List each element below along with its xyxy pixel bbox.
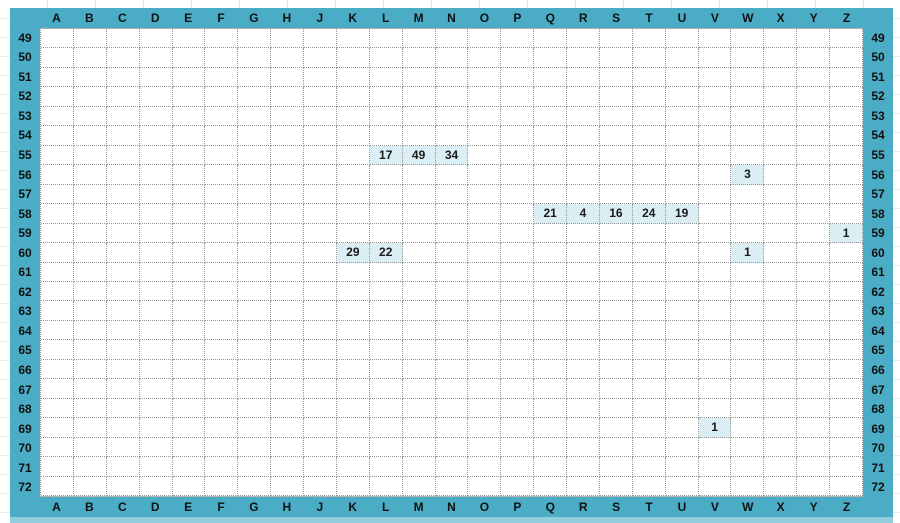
cell-A66[interactable] (41, 360, 74, 379)
cell-Y61[interactable] (797, 263, 830, 282)
cell-J55[interactable] (304, 146, 337, 165)
cell-J53[interactable] (304, 107, 337, 126)
cell-J64[interactable] (304, 321, 337, 340)
cell-S66[interactable] (600, 360, 633, 379)
cell-F60[interactable] (205, 243, 238, 262)
cell-H57[interactable] (271, 185, 304, 204)
cell-P54[interactable] (501, 126, 534, 145)
cell-J69[interactable] (304, 418, 337, 437)
cell-D57[interactable] (140, 185, 173, 204)
cell-F49[interactable] (205, 29, 238, 48)
cell-M50[interactable] (403, 48, 436, 67)
cell-X66[interactable] (764, 360, 797, 379)
cell-O69[interactable] (468, 418, 501, 437)
cell-R65[interactable] (567, 340, 600, 359)
cell-U57[interactable] (666, 185, 699, 204)
cell-B59[interactable] (74, 224, 107, 243)
cell-V55[interactable] (699, 146, 732, 165)
cell-E53[interactable] (173, 107, 206, 126)
cell-E61[interactable] (173, 263, 206, 282)
cell-G50[interactable] (238, 48, 271, 67)
cell-R53[interactable] (567, 107, 600, 126)
cell-Y66[interactable] (797, 360, 830, 379)
cell-L60[interactable]: 22 (370, 243, 403, 262)
cell-D54[interactable] (140, 126, 173, 145)
cell-X70[interactable] (764, 438, 797, 457)
cell-S55[interactable] (600, 146, 633, 165)
cell-V49[interactable] (699, 29, 732, 48)
cell-A56[interactable] (41, 165, 74, 184)
cell-Y64[interactable] (797, 321, 830, 340)
cell-U61[interactable] (666, 263, 699, 282)
cell-D52[interactable] (140, 87, 173, 106)
cell-E72[interactable] (173, 477, 206, 496)
cell-T55[interactable] (633, 146, 666, 165)
cell-S56[interactable] (600, 165, 633, 184)
cell-P69[interactable] (501, 418, 534, 437)
cell-S62[interactable] (600, 282, 633, 301)
cell-X54[interactable] (764, 126, 797, 145)
cell-N53[interactable] (436, 107, 469, 126)
cell-S71[interactable] (600, 457, 633, 476)
cell-Z51[interactable] (830, 68, 863, 87)
cell-M51[interactable] (403, 68, 436, 87)
cell-A68[interactable] (41, 399, 74, 418)
cell-N67[interactable] (436, 379, 469, 398)
cell-Y54[interactable] (797, 126, 830, 145)
cell-K53[interactable] (337, 107, 370, 126)
cell-A71[interactable] (41, 457, 74, 476)
cell-H66[interactable] (271, 360, 304, 379)
cell-X58[interactable] (764, 204, 797, 223)
cell-G54[interactable] (238, 126, 271, 145)
cell-Q51[interactable] (534, 68, 567, 87)
cell-K57[interactable] (337, 185, 370, 204)
cell-W61[interactable] (731, 263, 764, 282)
cell-C71[interactable] (107, 457, 140, 476)
cell-P63[interactable] (501, 301, 534, 320)
cell-Y59[interactable] (797, 224, 830, 243)
cell-B67[interactable] (74, 379, 107, 398)
cell-B50[interactable] (74, 48, 107, 67)
cell-U56[interactable] (666, 165, 699, 184)
cell-W62[interactable] (731, 282, 764, 301)
cell-R71[interactable] (567, 457, 600, 476)
cell-F50[interactable] (205, 48, 238, 67)
cell-U66[interactable] (666, 360, 699, 379)
cell-D62[interactable] (140, 282, 173, 301)
cell-J57[interactable] (304, 185, 337, 204)
cell-N51[interactable] (436, 68, 469, 87)
cell-N60[interactable] (436, 243, 469, 262)
cell-F68[interactable] (205, 399, 238, 418)
cell-M52[interactable] (403, 87, 436, 106)
cell-N57[interactable] (436, 185, 469, 204)
cell-T72[interactable] (633, 477, 666, 496)
cell-N68[interactable] (436, 399, 469, 418)
cell-O58[interactable] (468, 204, 501, 223)
cell-P66[interactable] (501, 360, 534, 379)
cell-W71[interactable] (731, 457, 764, 476)
cell-L58[interactable] (370, 204, 403, 223)
cell-U60[interactable] (666, 243, 699, 262)
cell-O56[interactable] (468, 165, 501, 184)
cell-L53[interactable] (370, 107, 403, 126)
cell-O50[interactable] (468, 48, 501, 67)
cell-B65[interactable] (74, 340, 107, 359)
cell-H56[interactable] (271, 165, 304, 184)
cell-C69[interactable] (107, 418, 140, 437)
cell-P59[interactable] (501, 224, 534, 243)
cell-K70[interactable] (337, 438, 370, 457)
cell-E54[interactable] (173, 126, 206, 145)
cell-K63[interactable] (337, 301, 370, 320)
cell-C65[interactable] (107, 340, 140, 359)
cell-K59[interactable] (337, 224, 370, 243)
cell-Q69[interactable] (534, 418, 567, 437)
cell-K51[interactable] (337, 68, 370, 87)
cell-C61[interactable] (107, 263, 140, 282)
cell-S49[interactable] (600, 29, 633, 48)
cell-G55[interactable] (238, 146, 271, 165)
cell-A67[interactable] (41, 379, 74, 398)
cell-S60[interactable] (600, 243, 633, 262)
cell-F52[interactable] (205, 87, 238, 106)
cell-Y71[interactable] (797, 457, 830, 476)
cell-A52[interactable] (41, 87, 74, 106)
cell-P50[interactable] (501, 48, 534, 67)
cell-M63[interactable] (403, 301, 436, 320)
cell-X61[interactable] (764, 263, 797, 282)
cell-T63[interactable] (633, 301, 666, 320)
cell-C52[interactable] (107, 87, 140, 106)
cell-E49[interactable] (173, 29, 206, 48)
cell-A51[interactable] (41, 68, 74, 87)
cell-W70[interactable] (731, 438, 764, 457)
cell-V59[interactable] (699, 224, 732, 243)
cell-S65[interactable] (600, 340, 633, 359)
cell-P51[interactable] (501, 68, 534, 87)
cell-C55[interactable] (107, 146, 140, 165)
cell-M68[interactable] (403, 399, 436, 418)
cell-M60[interactable] (403, 243, 436, 262)
cell-J67[interactable] (304, 379, 337, 398)
cell-E50[interactable] (173, 48, 206, 67)
cell-B62[interactable] (74, 282, 107, 301)
cell-Q53[interactable] (534, 107, 567, 126)
cell-E71[interactable] (173, 457, 206, 476)
cell-W69[interactable] (731, 418, 764, 437)
cell-Q66[interactable] (534, 360, 567, 379)
cell-F69[interactable] (205, 418, 238, 437)
cell-G70[interactable] (238, 438, 271, 457)
cell-P65[interactable] (501, 340, 534, 359)
cell-A60[interactable] (41, 243, 74, 262)
cell-Q65[interactable] (534, 340, 567, 359)
cell-A64[interactable] (41, 321, 74, 340)
cell-W67[interactable] (731, 379, 764, 398)
cell-W53[interactable] (731, 107, 764, 126)
cell-U51[interactable] (666, 68, 699, 87)
cell-K54[interactable] (337, 126, 370, 145)
cell-O61[interactable] (468, 263, 501, 282)
cell-K66[interactable] (337, 360, 370, 379)
cell-M65[interactable] (403, 340, 436, 359)
cell-M69[interactable] (403, 418, 436, 437)
cell-D51[interactable] (140, 68, 173, 87)
cell-K61[interactable] (337, 263, 370, 282)
cell-J65[interactable] (304, 340, 337, 359)
cell-R62[interactable] (567, 282, 600, 301)
cell-M67[interactable] (403, 379, 436, 398)
cell-Y52[interactable] (797, 87, 830, 106)
cell-E57[interactable] (173, 185, 206, 204)
cell-D60[interactable] (140, 243, 173, 262)
cell-X55[interactable] (764, 146, 797, 165)
cell-B51[interactable] (74, 68, 107, 87)
cell-H70[interactable] (271, 438, 304, 457)
cell-G60[interactable] (238, 243, 271, 262)
cell-J51[interactable] (304, 68, 337, 87)
cell-Z50[interactable] (830, 48, 863, 67)
cell-E62[interactable] (173, 282, 206, 301)
cell-V58[interactable] (699, 204, 732, 223)
cell-G59[interactable] (238, 224, 271, 243)
cell-M56[interactable] (403, 165, 436, 184)
cell-K60[interactable]: 29 (337, 243, 370, 262)
cell-E67[interactable] (173, 379, 206, 398)
cell-A54[interactable] (41, 126, 74, 145)
cell-L63[interactable] (370, 301, 403, 320)
cell-T71[interactable] (633, 457, 666, 476)
cell-H53[interactable] (271, 107, 304, 126)
cell-Q58[interactable]: 21 (534, 204, 567, 223)
cell-Y72[interactable] (797, 477, 830, 496)
cell-M66[interactable] (403, 360, 436, 379)
cell-N61[interactable] (436, 263, 469, 282)
cell-F65[interactable] (205, 340, 238, 359)
cell-W57[interactable] (731, 185, 764, 204)
cell-M72[interactable] (403, 477, 436, 496)
cell-O53[interactable] (468, 107, 501, 126)
cell-C58[interactable] (107, 204, 140, 223)
cell-U58[interactable]: 19 (666, 204, 699, 223)
cell-O64[interactable] (468, 321, 501, 340)
cell-Z71[interactable] (830, 457, 863, 476)
cell-Y68[interactable] (797, 399, 830, 418)
cell-O54[interactable] (468, 126, 501, 145)
cell-Q67[interactable] (534, 379, 567, 398)
cell-M62[interactable] (403, 282, 436, 301)
cell-D70[interactable] (140, 438, 173, 457)
cell-V56[interactable] (699, 165, 732, 184)
cell-J70[interactable] (304, 438, 337, 457)
cell-C50[interactable] (107, 48, 140, 67)
cell-O55[interactable] (468, 146, 501, 165)
cell-N59[interactable] (436, 224, 469, 243)
cell-F70[interactable] (205, 438, 238, 457)
cell-K62[interactable] (337, 282, 370, 301)
cell-N72[interactable] (436, 477, 469, 496)
cell-P72[interactable] (501, 477, 534, 496)
cell-H69[interactable] (271, 418, 304, 437)
cell-U72[interactable] (666, 477, 699, 496)
cell-J49[interactable] (304, 29, 337, 48)
cell-Y65[interactable] (797, 340, 830, 359)
cell-Q70[interactable] (534, 438, 567, 457)
cell-V53[interactable] (699, 107, 732, 126)
cell-H64[interactable] (271, 321, 304, 340)
cell-C53[interactable] (107, 107, 140, 126)
cell-Z64[interactable] (830, 321, 863, 340)
cell-Y62[interactable] (797, 282, 830, 301)
cell-H67[interactable] (271, 379, 304, 398)
cell-J58[interactable] (304, 204, 337, 223)
cell-F53[interactable] (205, 107, 238, 126)
cell-M55[interactable]: 49 (403, 146, 436, 165)
cell-Z58[interactable] (830, 204, 863, 223)
cell-F62[interactable] (205, 282, 238, 301)
cell-N56[interactable] (436, 165, 469, 184)
cell-X69[interactable] (764, 418, 797, 437)
cell-S63[interactable] (600, 301, 633, 320)
cell-K65[interactable] (337, 340, 370, 359)
cell-D59[interactable] (140, 224, 173, 243)
cell-Z68[interactable] (830, 399, 863, 418)
cell-X56[interactable] (764, 165, 797, 184)
cell-S68[interactable] (600, 399, 633, 418)
cell-A63[interactable] (41, 301, 74, 320)
cell-B60[interactable] (74, 243, 107, 262)
cell-K58[interactable] (337, 204, 370, 223)
cell-G72[interactable] (238, 477, 271, 496)
cell-C57[interactable] (107, 185, 140, 204)
cell-Y57[interactable] (797, 185, 830, 204)
cell-V52[interactable] (699, 87, 732, 106)
cell-B68[interactable] (74, 399, 107, 418)
cell-T56[interactable] (633, 165, 666, 184)
cell-B69[interactable] (74, 418, 107, 437)
cell-N62[interactable] (436, 282, 469, 301)
cell-J59[interactable] (304, 224, 337, 243)
cell-H52[interactable] (271, 87, 304, 106)
cell-R64[interactable] (567, 321, 600, 340)
cell-L56[interactable] (370, 165, 403, 184)
cell-D56[interactable] (140, 165, 173, 184)
cell-P57[interactable] (501, 185, 534, 204)
cell-F58[interactable] (205, 204, 238, 223)
cell-T57[interactable] (633, 185, 666, 204)
cell-U63[interactable] (666, 301, 699, 320)
cell-Q72[interactable] (534, 477, 567, 496)
cell-O70[interactable] (468, 438, 501, 457)
cell-X68[interactable] (764, 399, 797, 418)
cell-G67[interactable] (238, 379, 271, 398)
cell-F72[interactable] (205, 477, 238, 496)
cell-D50[interactable] (140, 48, 173, 67)
cell-B56[interactable] (74, 165, 107, 184)
cell-H59[interactable] (271, 224, 304, 243)
cell-Z72[interactable] (830, 477, 863, 496)
cell-K72[interactable] (337, 477, 370, 496)
cell-M58[interactable] (403, 204, 436, 223)
cell-U55[interactable] (666, 146, 699, 165)
cell-N69[interactable] (436, 418, 469, 437)
cell-S64[interactable] (600, 321, 633, 340)
cell-B72[interactable] (74, 477, 107, 496)
cell-L51[interactable] (370, 68, 403, 87)
cell-N63[interactable] (436, 301, 469, 320)
cell-Z52[interactable] (830, 87, 863, 106)
cell-U69[interactable] (666, 418, 699, 437)
cell-S52[interactable] (600, 87, 633, 106)
cell-A70[interactable] (41, 438, 74, 457)
cell-Z60[interactable] (830, 243, 863, 262)
cell-T58[interactable]: 24 (633, 204, 666, 223)
cell-M53[interactable] (403, 107, 436, 126)
cell-S59[interactable] (600, 224, 633, 243)
cell-P64[interactable] (501, 321, 534, 340)
cell-G61[interactable] (238, 263, 271, 282)
cell-Y50[interactable] (797, 48, 830, 67)
cell-V60[interactable] (699, 243, 732, 262)
cell-L50[interactable] (370, 48, 403, 67)
cell-R55[interactable] (567, 146, 600, 165)
cell-C60[interactable] (107, 243, 140, 262)
cell-K67[interactable] (337, 379, 370, 398)
cell-F57[interactable] (205, 185, 238, 204)
cell-S53[interactable] (600, 107, 633, 126)
cell-C59[interactable] (107, 224, 140, 243)
cell-L64[interactable] (370, 321, 403, 340)
cell-A58[interactable] (41, 204, 74, 223)
cell-L70[interactable] (370, 438, 403, 457)
cell-C68[interactable] (107, 399, 140, 418)
cell-Y58[interactable] (797, 204, 830, 223)
cell-S57[interactable] (600, 185, 633, 204)
cell-B64[interactable] (74, 321, 107, 340)
cell-F56[interactable] (205, 165, 238, 184)
cell-F71[interactable] (205, 457, 238, 476)
cell-F54[interactable] (205, 126, 238, 145)
cell-O49[interactable] (468, 29, 501, 48)
cell-W65[interactable] (731, 340, 764, 359)
cell-O72[interactable] (468, 477, 501, 496)
cell-W63[interactable] (731, 301, 764, 320)
cell-G65[interactable] (238, 340, 271, 359)
cell-L67[interactable] (370, 379, 403, 398)
cell-R69[interactable] (567, 418, 600, 437)
cell-G68[interactable] (238, 399, 271, 418)
cell-J56[interactable] (304, 165, 337, 184)
cell-R57[interactable] (567, 185, 600, 204)
cell-F51[interactable] (205, 68, 238, 87)
cell-T70[interactable] (633, 438, 666, 457)
cell-P68[interactable] (501, 399, 534, 418)
cell-T67[interactable] (633, 379, 666, 398)
cell-T65[interactable] (633, 340, 666, 359)
cell-R68[interactable] (567, 399, 600, 418)
cell-W68[interactable] (731, 399, 764, 418)
cell-H50[interactable] (271, 48, 304, 67)
cell-V69[interactable]: 1 (699, 418, 732, 437)
cell-W52[interactable] (731, 87, 764, 106)
cell-U67[interactable] (666, 379, 699, 398)
cell-U59[interactable] (666, 224, 699, 243)
cell-N66[interactable] (436, 360, 469, 379)
cell-V71[interactable] (699, 457, 732, 476)
cell-R70[interactable] (567, 438, 600, 457)
